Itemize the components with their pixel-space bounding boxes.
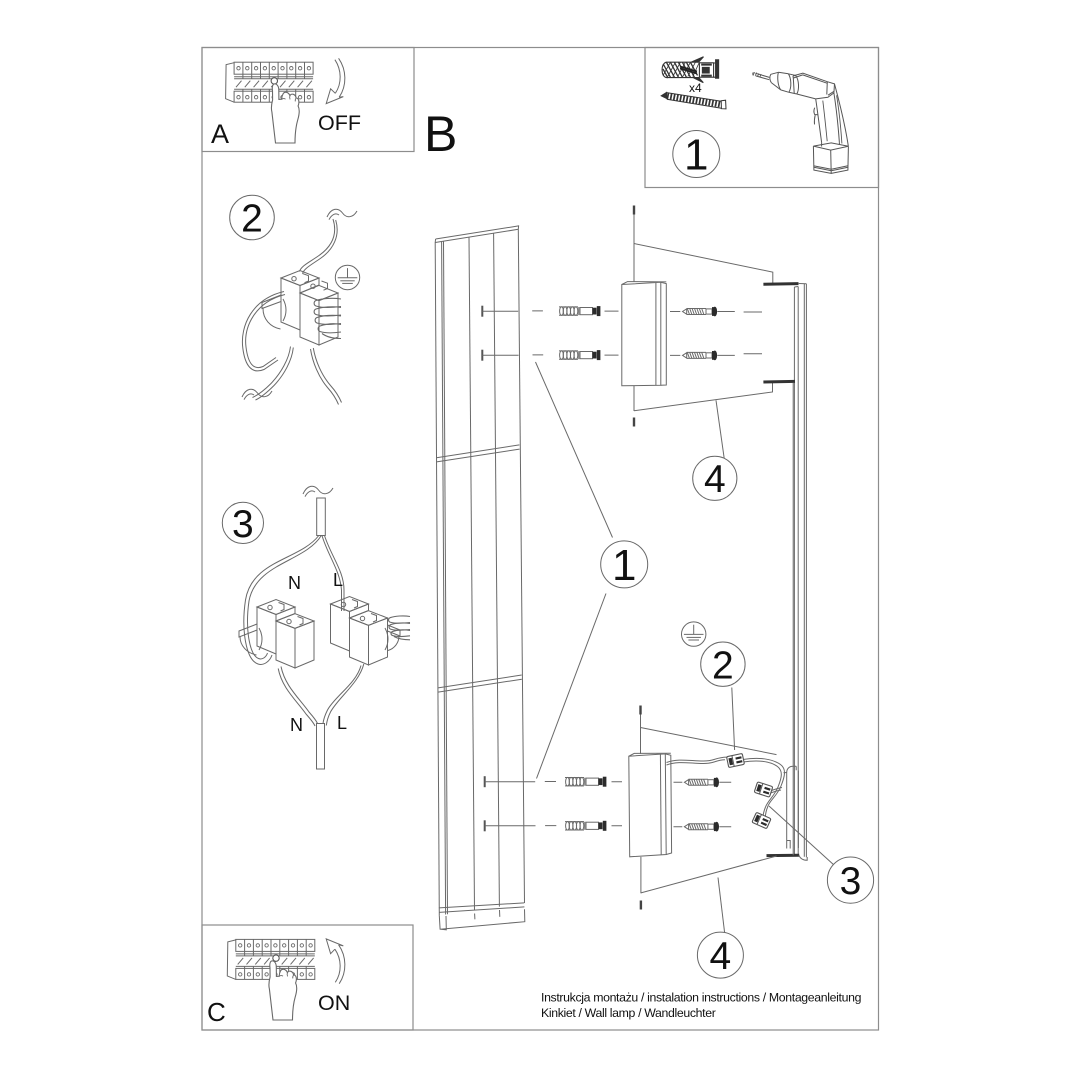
svg-text:OFF: OFF xyxy=(318,111,361,135)
svg-text:4: 4 xyxy=(704,458,726,501)
svg-text:3: 3 xyxy=(840,860,862,903)
svg-text:4: 4 xyxy=(710,935,732,978)
svg-text:N: N xyxy=(290,715,303,735)
svg-text:L: L xyxy=(337,713,347,733)
svg-text:C: C xyxy=(207,997,226,1027)
svg-text:Kinkiet / Wall lamp / Wandleuc: Kinkiet / Wall lamp / Wandleuchter xyxy=(541,1006,716,1020)
svg-text:2: 2 xyxy=(241,198,263,241)
svg-text:B: B xyxy=(424,106,457,162)
svg-text:A: A xyxy=(211,119,229,149)
svg-text:1: 1 xyxy=(684,131,708,180)
svg-text:x4: x4 xyxy=(689,81,702,95)
svg-text:ON: ON xyxy=(318,991,350,1015)
svg-text:1: 1 xyxy=(612,541,636,590)
svg-text:2: 2 xyxy=(712,644,734,687)
svg-text:Instrukcja montażu / instalati: Instrukcja montażu / instalation instruc… xyxy=(541,991,862,1005)
svg-text:3: 3 xyxy=(232,503,254,546)
svg-text:N: N xyxy=(288,573,301,593)
svg-text:L: L xyxy=(333,570,343,590)
